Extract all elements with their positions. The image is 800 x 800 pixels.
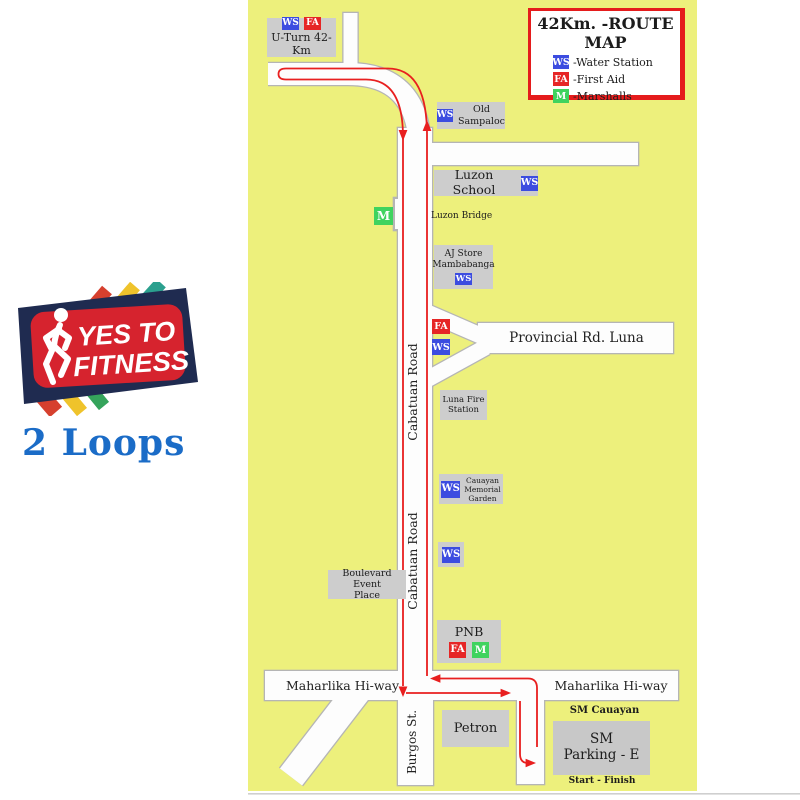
legend-title: 42Km. -ROUTE MAP: [531, 14, 680, 52]
pnb-badges: FA M: [449, 642, 489, 658]
luna-fire-station-box: Luna Fire Station: [440, 390, 487, 420]
first-aid-icon: FA: [449, 642, 466, 658]
bottom-divider: [248, 793, 800, 795]
cauayan-memorial-label: Cauayan Memorial Garden: [464, 476, 501, 503]
first-aid-icon: FA: [304, 17, 321, 30]
first-aid-icon: FA: [432, 319, 450, 334]
marshall-icon: M: [553, 89, 569, 103]
legend-label: -First Aid: [573, 73, 625, 86]
uturn-label: U-Turn 42-Km: [267, 32, 336, 58]
aj-store-box: AJ Store Mambabanga WS: [434, 245, 493, 289]
burgos-street-label: Burgos St.: [405, 689, 421, 795]
water-station-icon: WS: [282, 17, 299, 30]
aj-store-label: AJ Store: [445, 249, 483, 260]
old-sampaloc-label: Old Sampaloc: [458, 104, 505, 126]
boulevard-event-box: Boulevard Event Place: [328, 570, 406, 599]
sm-parking-box: SM Parking - E: [553, 721, 650, 775]
water-station-icon: WS: [432, 339, 450, 355]
yes-to-fitness-logo: YES TO FITNESS: [10, 282, 208, 416]
first-aid-icon: FA: [553, 72, 569, 86]
maharlika-left-label: Maharlika Hi-way: [285, 678, 400, 693]
sm-cauayan-label: SM Cauayan: [557, 705, 652, 716]
water-station-icon: WS: [442, 547, 460, 563]
petron-box: Petron: [442, 710, 509, 747]
marshall-icon: M: [472, 642, 489, 658]
pnb-label: PNB: [455, 625, 484, 640]
water-station-icon: WS: [521, 176, 538, 191]
water-station-icon: WS: [441, 481, 460, 498]
logo-text: YES TO FITNESS: [70, 315, 189, 382]
maharlika-right-label: Maharlika Hi-way: [548, 678, 674, 693]
water-station-icon: WS: [553, 55, 569, 69]
legend-row-first-aid: FA -First Aid: [553, 72, 680, 86]
water-station-icon: WS: [437, 109, 453, 122]
provincial-road-label: Provincial Rd. Luna: [480, 330, 673, 346]
cabatuan-road-label-2: Cabatuan Road: [405, 500, 421, 622]
uturn-badges: WS FA: [282, 17, 321, 30]
luzon-school-box: Luzon School WS: [434, 170, 538, 196]
uturn-label-box: WS FA U-Turn 42-Km: [267, 18, 336, 57]
route-map-poster: 42Km. -ROUTE MAP WS -Water Station FA -F…: [0, 0, 800, 800]
marshall-icon: M: [374, 207, 393, 225]
luzon-school-label: Luzon School: [434, 168, 514, 198]
luzon-bridge-label: Luzon Bridge: [431, 211, 492, 221]
pnb-box: PNB FA M: [437, 620, 501, 663]
start-finish-label: Start - Finish: [557, 776, 647, 786]
water-station-box: WS: [438, 542, 464, 567]
petron-label: Petron: [454, 721, 498, 736]
cabatuan-road-label: Cabatuan Road: [405, 331, 421, 453]
water-station-icon: WS: [455, 273, 472, 285]
legend-row-marshalls: M -Marshalls: [553, 89, 680, 103]
aj-store-label2: Mambabanga: [432, 260, 494, 271]
cauayan-memorial-box: WS Cauayan Memorial Garden: [439, 474, 503, 504]
legend-box: 42Km. -ROUTE MAP WS -Water Station FA -F…: [528, 8, 685, 100]
legend-label: -Marshalls: [573, 90, 632, 103]
loops-label: 2 Loops: [22, 422, 222, 464]
legend-row-water-station: WS -Water Station: [553, 55, 680, 69]
old-sampaloc-box: WS Old Sampaloc: [437, 102, 505, 129]
legend-label: -Water Station: [573, 56, 653, 69]
